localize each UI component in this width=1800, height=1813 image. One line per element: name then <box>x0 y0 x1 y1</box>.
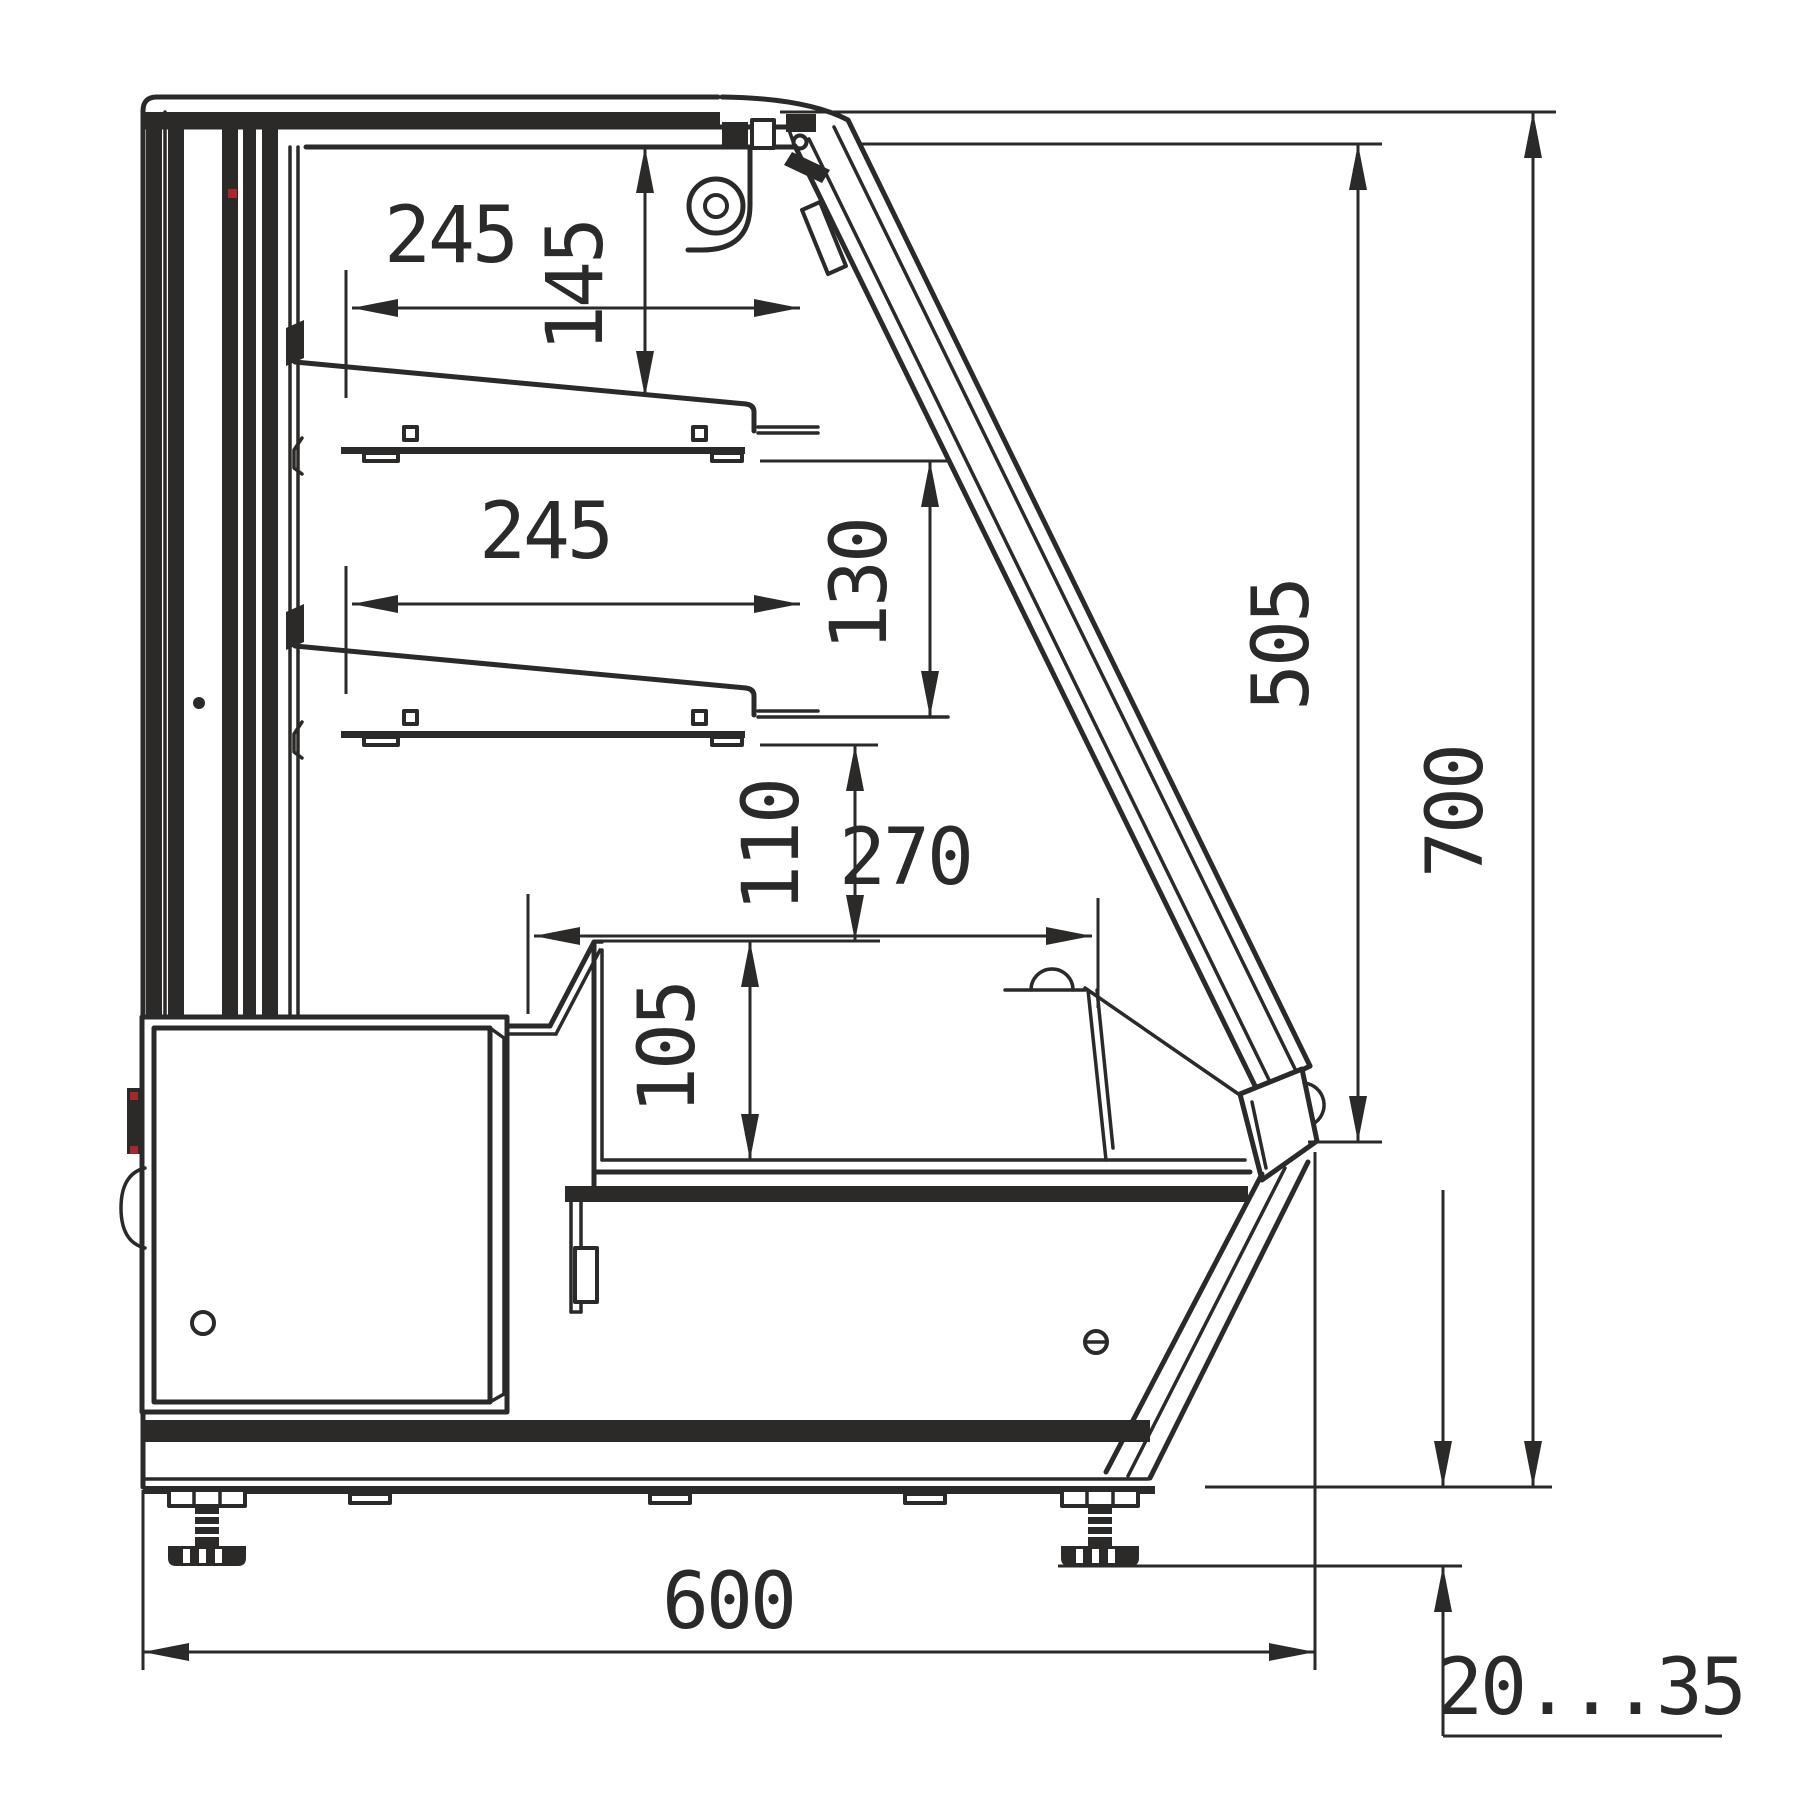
front-sill <box>1106 1069 1324 1478</box>
canopy-end-cap <box>722 122 748 147</box>
door-handle-hole <box>192 1312 214 1334</box>
dim-glass-height: 505 <box>860 144 1382 1142</box>
dim-label-145: 145 <box>531 220 621 352</box>
shelf-clip <box>404 427 417 440</box>
rim-bumper <box>1031 969 1073 990</box>
shelf-clip <box>404 711 417 724</box>
shelf-bracket <box>341 731 745 738</box>
dim-label-20-35: 20...35 <box>1436 1643 1744 1733</box>
dim-label-130: 130 <box>815 519 905 651</box>
deck-latch <box>575 1248 597 1302</box>
dim-label-105: 105 <box>623 982 713 1114</box>
diagram-svg: 245 145 245 130 110 270 <box>0 0 1800 1813</box>
compartment-door <box>154 1028 490 1402</box>
leveling-foot-left <box>168 1490 246 1566</box>
hinge-block <box>786 114 816 132</box>
lamp-assembly <box>688 114 846 274</box>
dim-shelf-mid-depth: 245 <box>346 487 800 694</box>
shelf-bracket <box>341 447 745 454</box>
dim-mid-clearance: 130 <box>760 461 948 717</box>
dim-foot-range: 20...35 <box>1058 1190 1744 1736</box>
dim-top-clearance: 145 <box>531 147 654 397</box>
wall-marker-red <box>228 189 237 198</box>
machine-compartment <box>121 1017 507 1412</box>
dim-label-245-mid: 245 <box>479 487 611 577</box>
dim-well-height: 105 <box>594 941 880 1160</box>
dim-label-245-top: 245 <box>384 191 516 281</box>
wall-peg <box>193 697 205 709</box>
glass-clamp <box>752 120 774 148</box>
dim-label-270: 270 <box>839 813 971 903</box>
technical-drawing-page: 245 145 245 130 110 270 <box>0 0 1800 1813</box>
front-glass <box>722 97 1310 1092</box>
top-canopy <box>143 112 795 147</box>
dim-label-505: 505 <box>1237 579 1327 711</box>
shelf-clip <box>693 427 706 440</box>
dim-label-110: 110 <box>727 780 817 912</box>
shelf-clip <box>693 711 706 724</box>
leveling-foot-right <box>1061 1490 1139 1566</box>
dim-label-600: 600 <box>662 1557 794 1647</box>
deck-panel <box>565 1186 1248 1202</box>
base-plinth <box>143 1420 1155 1503</box>
dim-label-700: 700 <box>1411 746 1501 878</box>
